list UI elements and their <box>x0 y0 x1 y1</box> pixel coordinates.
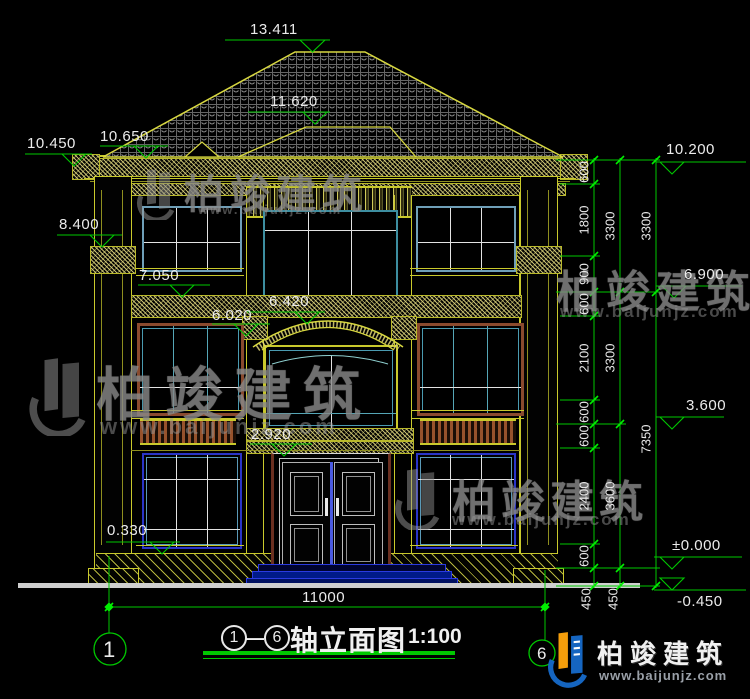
elevation-drawing-canvas: 柏竣建筑 www.baijunjz.com 柏竣建筑 www.baijunjz.… <box>0 0 750 699</box>
dim-inner: 600 <box>577 293 592 315</box>
elev-eave: 10.450 <box>27 135 76 152</box>
drawing-scale: 1:100 <box>408 625 462 649</box>
watermark-logo-icon <box>28 352 94 436</box>
elev-right-ground: -0.450 <box>677 593 723 610</box>
dim-inner: 900 <box>577 263 592 285</box>
elev-ridge: 13.411 <box>250 21 298 38</box>
brand-logo-icon <box>547 624 593 690</box>
dim-inner: 600 <box>577 161 592 183</box>
dim-middle: 3600 <box>603 482 618 511</box>
elev-door-head: 2.920 <box>251 426 291 443</box>
overall-width-dim: 11000 <box>302 589 345 606</box>
watermark-url: www.baijunjz.com <box>198 202 342 217</box>
elev-eave-high: 10.650 <box>100 128 149 145</box>
dim-inner: 2400 <box>577 482 592 511</box>
elev-right-f2: 3.600 <box>686 397 726 414</box>
dim-inner: 600 <box>577 401 592 423</box>
dim-middle: 3300 <box>603 344 618 373</box>
watermark-url: www.baijunjz.com <box>452 510 631 530</box>
elev-plinth: 0.330 <box>107 522 147 539</box>
elev-porch-ridge: 11.620 <box>270 93 318 110</box>
dim-middle: 3300 <box>603 212 618 241</box>
elev-right-eave: 10.200 <box>666 141 715 158</box>
dim-middle: 450 <box>606 588 621 610</box>
title-separator: — <box>246 628 264 649</box>
watermark-url: www.baijunjz.com <box>100 414 338 440</box>
elev-f3-sill: 7.050 <box>139 267 179 284</box>
dim-inner: 2100 <box>577 344 592 373</box>
dim-outer: 7350 <box>639 425 654 454</box>
brand-name: 柏竣建筑 <box>597 634 729 671</box>
dim-inner: 1800 <box>577 206 592 235</box>
dim-inner: 600 <box>577 545 592 567</box>
watermark-logo-icon <box>136 166 180 220</box>
title-axis-end-circle: 6 <box>264 625 290 651</box>
elev-capital: 8.400 <box>59 216 99 233</box>
roof <box>103 52 563 157</box>
dim-inner: 450 <box>579 588 594 610</box>
dim-outer: 3300 <box>639 212 654 241</box>
elev-arch-top: 6.420 <box>269 293 309 310</box>
elev-arch-spring: 6.020 <box>212 307 252 324</box>
elev-right-f3: 6.900 <box>684 266 724 283</box>
title-axis-start-circle: 1 <box>221 625 247 651</box>
elev-right-zero: ±0.000 <box>672 537 721 554</box>
brand-url: www.baijunjz.com <box>599 668 727 683</box>
dim-inner: 600 <box>577 425 592 447</box>
drawing-title: 轴立面图 <box>290 619 406 659</box>
watermark-logo-icon <box>394 464 446 530</box>
axis-bubble-left-label: 1 <box>103 637 116 663</box>
axis-bubble-right-label: 6 <box>537 644 547 664</box>
